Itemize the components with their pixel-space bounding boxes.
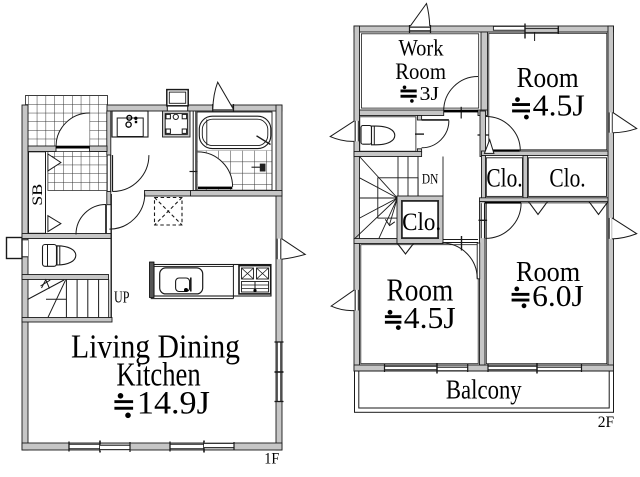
svg-text:3J: 3J <box>420 83 440 105</box>
svg-text:Work: Work <box>398 35 443 61</box>
svg-text:1F: 1F <box>264 450 279 467</box>
svg-text:DN: DN <box>422 172 439 188</box>
svg-text:14.9J: 14.9J <box>137 385 210 421</box>
svg-text:Balcony: Balcony <box>446 374 522 405</box>
svg-text:Clo.: Clo. <box>402 207 441 236</box>
svg-text:UP: UP <box>114 288 129 307</box>
svg-text:SB: SB <box>30 184 46 206</box>
svg-text:Clo.: Clo. <box>486 164 522 193</box>
svg-text:Clo.: Clo. <box>549 164 585 193</box>
svg-text:4.5J: 4.5J <box>533 88 585 123</box>
svg-text:6.0J: 6.0J <box>532 278 584 313</box>
svg-text:Room: Room <box>395 59 446 85</box>
svg-text:2F: 2F <box>598 414 614 431</box>
svg-text:4.5J: 4.5J <box>404 300 456 335</box>
